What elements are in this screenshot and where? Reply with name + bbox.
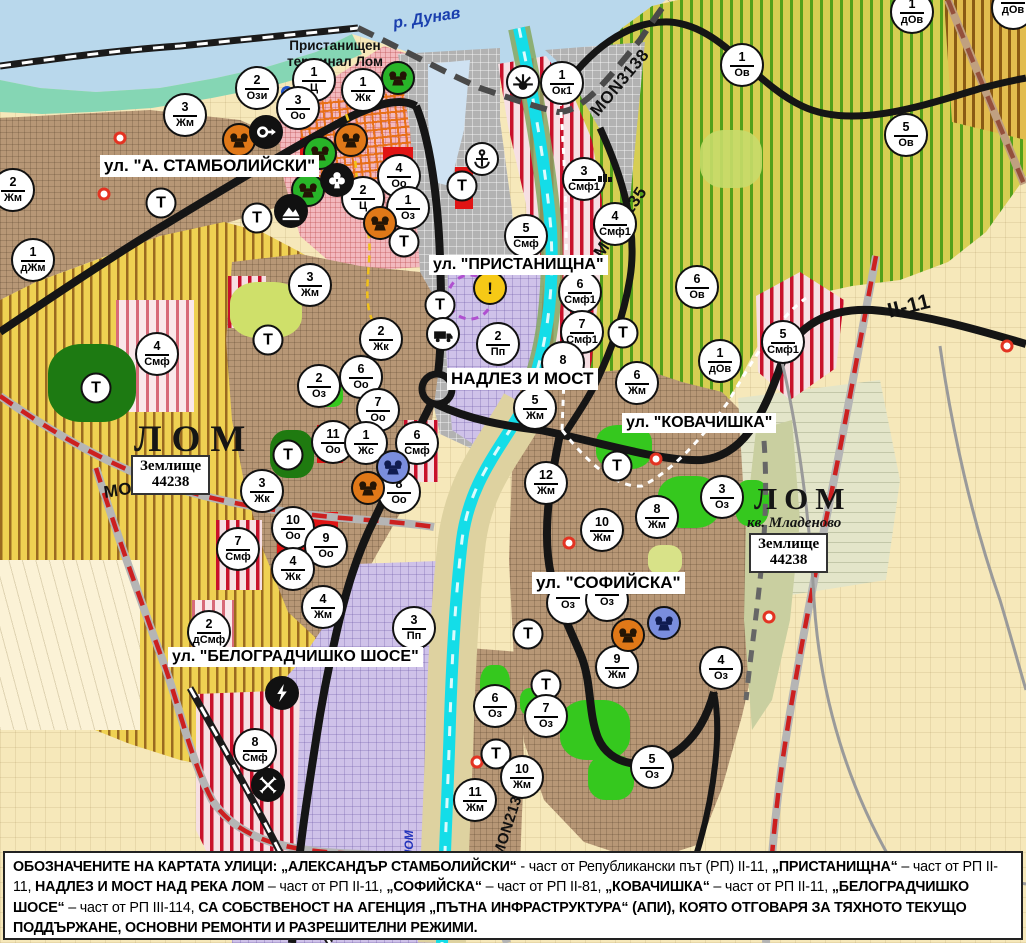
zone-marker: 10Жм — [580, 508, 624, 552]
marker-code: Оз — [715, 500, 729, 511]
street-label: ул. "А. СТАМБОЛИЙСКИ" — [100, 155, 319, 177]
red-dot-marker — [114, 132, 127, 145]
marker-code: Жм — [648, 520, 666, 531]
zone-marker: 5Смф1 — [761, 320, 805, 364]
marker-number: 8 — [252, 736, 259, 749]
marker-number: 3 — [581, 165, 588, 178]
zone-marker: 5Жм — [513, 386, 557, 430]
zone-marker: 5Смф — [504, 214, 548, 258]
marker-code: Оз — [488, 709, 502, 720]
zone-marker: 3Жм — [288, 263, 332, 307]
marker-number: 11 — [468, 786, 481, 799]
transformer-marker: Т — [273, 440, 304, 471]
marker-number: 4 — [154, 340, 161, 353]
marker-code: Оз — [312, 389, 326, 400]
zone-marker: 4Смф — [135, 332, 179, 376]
marker-code: Смф — [242, 753, 268, 764]
marker-code: Ц — [359, 201, 367, 212]
marker-number: 6 — [358, 363, 365, 376]
zone-marker: 2Жк — [359, 317, 403, 361]
marker-code: Ов — [734, 68, 749, 79]
marker-code: Жм — [537, 486, 555, 497]
zone-marker: 8Смф — [233, 728, 277, 772]
landplot-box: Землище44238 — [131, 455, 210, 495]
zone-marker: 3Пп — [392, 606, 436, 650]
zone-marker: 12Жм — [524, 461, 568, 505]
zone-marker: 4Жм — [301, 585, 345, 629]
marker-code: Жм — [466, 803, 484, 814]
zone-marker: 6Смф1 — [558, 270, 602, 314]
marker-code: Оо — [318, 549, 333, 560]
quarter-name-label: кв. Младеново — [747, 515, 841, 532]
marker-number: 4 — [396, 162, 403, 175]
marker-number: 6 — [414, 429, 421, 442]
info-text-segment: ОБОЗНАЧЕНИТЕ НА КАРТАТА УЛИЦИ: „АЛЕКСАНД… — [13, 859, 517, 875]
zone-marker: 1Ов — [720, 43, 764, 87]
marker-number: 6 — [492, 692, 499, 705]
marker-code: Оз — [561, 600, 575, 611]
marker-number: 4 — [320, 593, 327, 606]
info-text-segment: НАДЛЕЗ И МОСТ НАД РЕКА ЛОМ — [35, 879, 264, 895]
works-icon — [595, 168, 615, 188]
marker-number: 3 — [182, 101, 189, 114]
marker-number: 5 — [903, 121, 910, 134]
marker-number: 11 — [326, 428, 339, 441]
marker-code: Ози — [247, 91, 268, 102]
zone-marker: 1Жк — [341, 68, 385, 112]
marker-code: Оо — [325, 445, 340, 456]
zone-marker: 3Жм — [163, 93, 207, 137]
marker-code: Жм — [4, 193, 22, 204]
marker-number: 4 — [290, 555, 297, 568]
marker-number: 1 — [405, 194, 412, 207]
heritage-icon — [381, 61, 415, 95]
marker-number: 3 — [411, 614, 418, 627]
red-dot-marker — [763, 611, 776, 624]
marker-code: Смф1 — [599, 227, 631, 238]
info-text-segment: – част от РП II-11, — [710, 879, 832, 895]
zone-marker: 2Ози — [235, 66, 279, 110]
zone-marker: 9Жм — [595, 645, 639, 689]
marker-number: 5 — [532, 394, 539, 407]
street-label: ул. "КОВАЧИШКА" — [622, 413, 776, 433]
marker-code: Оз — [600, 597, 614, 608]
transformer-marker: Т — [253, 325, 284, 356]
red-dot-marker — [563, 537, 576, 550]
marker-number: 6 — [634, 369, 641, 382]
red-dot-marker — [1001, 340, 1014, 353]
transformer-marker: Т — [608, 318, 639, 349]
transformer-marker: Т — [81, 373, 112, 404]
marker-number: 10 — [286, 514, 300, 527]
transformer-marker: Т — [602, 451, 633, 482]
marker-number: 3 — [295, 94, 302, 107]
street-label: ул. "СОФИЙСКА" — [532, 572, 685, 594]
zone-marker: 3Оо — [276, 86, 320, 130]
marker-number: 10 — [595, 516, 609, 529]
zoning-map: ! 2Ози1Ц3Оо1Жк1Ок13Жм2Жм1дЖм3Жм4Оо2Ц1Оз3… — [0, 0, 1026, 943]
city-name-label: ЛОМ — [754, 481, 851, 517]
marker-code: Оо — [391, 495, 406, 506]
marker-number: 2 — [378, 325, 385, 338]
heritage-icon — [647, 606, 681, 640]
marker-code: Оз — [645, 770, 659, 781]
zone-marker: 1Ок1 — [540, 61, 584, 105]
marker-number: 12 — [539, 469, 553, 482]
marker-code: Ок1 — [552, 86, 572, 97]
marker-number: 7 — [543, 702, 550, 715]
heritage-icon — [611, 618, 645, 652]
marker-code: Жк — [254, 494, 269, 505]
rural-road — [940, 346, 1026, 690]
marker-code: Жк — [355, 93, 370, 104]
svg-text:!: ! — [487, 279, 493, 298]
zone-marker: 4Смф1 — [593, 202, 637, 246]
marker-number: 1 — [739, 51, 746, 64]
marker-number: 3 — [307, 271, 314, 284]
marker-code: Ов — [689, 290, 704, 301]
heritage-icon — [376, 450, 410, 484]
truck-icon — [426, 317, 460, 351]
zone-marker: 3Оз — [700, 475, 744, 519]
marker-number: 2 — [254, 74, 261, 87]
zone-marker: 1дЖм — [11, 238, 55, 282]
zone-marker: 10Жм — [500, 755, 544, 799]
marker-code: Жм — [526, 411, 544, 422]
marker-code: Жк — [373, 342, 388, 353]
zone-marker: 7Оз — [524, 694, 568, 738]
marker-code: Смф — [513, 239, 539, 250]
marker-code: Жм — [513, 780, 531, 791]
marker-number: 1 — [909, 0, 916, 10]
zone-marker: 1дОв — [698, 339, 742, 383]
marker-number: 5 — [649, 753, 656, 766]
info-text-segment: „СОФИЙСКА“ — [386, 879, 482, 895]
substation-icon — [265, 676, 299, 710]
marker-code: Смф — [404, 446, 430, 457]
zone-marker: 4Жк — [271, 547, 315, 591]
red-dot-marker — [98, 188, 111, 201]
marker-code: Жм — [593, 533, 611, 544]
marker-code: Оо — [285, 531, 300, 542]
marker-code: Оо — [290, 111, 305, 122]
transformer-marker: Т — [447, 171, 478, 202]
zone-marker: 2Оз — [297, 364, 341, 408]
marker-number: 3 — [719, 483, 726, 496]
marker-code: Оо — [353, 380, 368, 391]
zone-marker: 6Оз — [473, 684, 517, 728]
marker-number: 2 — [316, 372, 323, 385]
marker-code: Пп — [407, 631, 422, 642]
marker-number: 1 — [360, 76, 367, 89]
landplot-box: Землище44238 — [749, 533, 828, 573]
zone-marker: 6Жм — [615, 361, 659, 405]
info-text-segment: – част от РП II-11, — [264, 879, 386, 895]
marker-code: Смф — [225, 552, 251, 563]
station-icon — [251, 768, 285, 802]
marker-code: Жм — [608, 670, 626, 681]
heritage-icon — [334, 123, 368, 157]
marker-number: 6 — [577, 278, 584, 291]
marker-code: Жм — [628, 386, 646, 397]
marker-number: 4 — [718, 654, 725, 667]
marker-number: 9 — [323, 532, 330, 545]
marker-number: 10 — [515, 763, 529, 776]
zone-marker: 3Жк — [240, 469, 284, 513]
anchor-icon — [465, 142, 499, 176]
marker-code: Оз — [401, 211, 415, 222]
street-label: ул. "ПРИСТАНИЩНА" — [429, 255, 608, 275]
mountain-icon — [274, 194, 308, 228]
info-text-segment: - част от Републикански път (РП) II-11, — [517, 859, 772, 875]
marker-number: 1 — [311, 66, 318, 79]
marker-number: 8 — [560, 354, 567, 367]
marker-number: 9 — [614, 653, 621, 666]
zone-marker: 2Пп — [476, 322, 520, 366]
zone-marker: 7Смф — [216, 527, 260, 571]
marker-number: 3 — [259, 477, 266, 490]
zone-marker: 5Ов — [884, 113, 928, 157]
marker-number: 4 — [612, 210, 619, 223]
street-label: ул. "БЕЛОГРАДЧИШКО ШОСЕ" — [168, 647, 423, 667]
marker-number: 2 — [10, 176, 17, 189]
trefoil-icon — [320, 163, 354, 197]
marker-number: 2 — [360, 184, 367, 197]
warning-icon: ! — [473, 271, 507, 305]
marker-number: 1 — [363, 429, 370, 442]
info-text-segment: – част от РП III-114, — [65, 900, 199, 916]
marker-code: дЖм — [20, 263, 45, 274]
marker-code: дСмф — [193, 635, 226, 646]
marker-code: Оз — [539, 719, 553, 730]
transformer-marker: Т — [513, 619, 544, 650]
marker-code: Жм — [176, 118, 194, 129]
info-text-segment: – част от РП II-81, — [482, 879, 605, 895]
heritage-icon — [363, 206, 397, 240]
marker-number: 2 — [206, 618, 213, 631]
info-text-segment: „ПРИСТАНИЩНА“ — [772, 859, 898, 875]
marker-code: Смф — [144, 357, 170, 368]
info-text-segment: „КОВАЧИШКА“ — [605, 879, 710, 895]
transformer-marker: Т — [425, 290, 456, 321]
red-dot-marker — [650, 453, 663, 466]
marker-code: Оз — [714, 671, 728, 682]
marker-number: 6 — [694, 273, 701, 286]
zone-marker: 8Жм — [635, 495, 679, 539]
marker-code: дОв — [1002, 5, 1024, 16]
zone-marker: 6Ов — [675, 265, 719, 309]
marker-number: 1 — [30, 246, 37, 259]
transformer-marker: Т — [242, 203, 273, 234]
marker-code: Ов — [898, 138, 913, 149]
marker-number: 8 — [654, 503, 661, 516]
marker-code: Жк — [285, 572, 300, 583]
zone-marker: 4Оз — [699, 646, 743, 690]
transformer-marker: Т — [146, 188, 177, 219]
marker-number: 7 — [375, 396, 382, 409]
marker-code: Пп — [491, 347, 506, 358]
marker-number: 5 — [780, 328, 787, 341]
marker-number: 7 — [235, 535, 242, 548]
zone-marker: 5Оз — [630, 745, 674, 789]
marker-number: 7 — [579, 318, 586, 331]
info-panel: ОБОЗНАЧЕНИТЕ НА КАРТАТА УЛИЦИ: „АЛЕКСАНД… — [3, 851, 1023, 940]
marker-number: 1 — [717, 347, 724, 360]
marker-code: Жм — [301, 288, 319, 299]
marker-number: 1 — [559, 69, 566, 82]
arrow-icon — [249, 115, 283, 149]
zone-marker: 11Жм — [453, 778, 497, 822]
marker-code: Смф1 — [564, 295, 596, 306]
marker-code: дОв — [709, 364, 731, 375]
marker-code: Жм — [314, 610, 332, 621]
marker-code: Жс — [358, 446, 374, 457]
rural-road — [782, 362, 892, 862]
marker-code: Смф1 — [767, 345, 799, 356]
marker-code: дОв — [901, 15, 923, 26]
marker-number: 5 — [523, 222, 530, 235]
street-label: НАДЛЕЗ И МОСТ — [447, 368, 598, 390]
marker-number: 2 — [495, 330, 502, 343]
sun-icon — [506, 65, 540, 99]
